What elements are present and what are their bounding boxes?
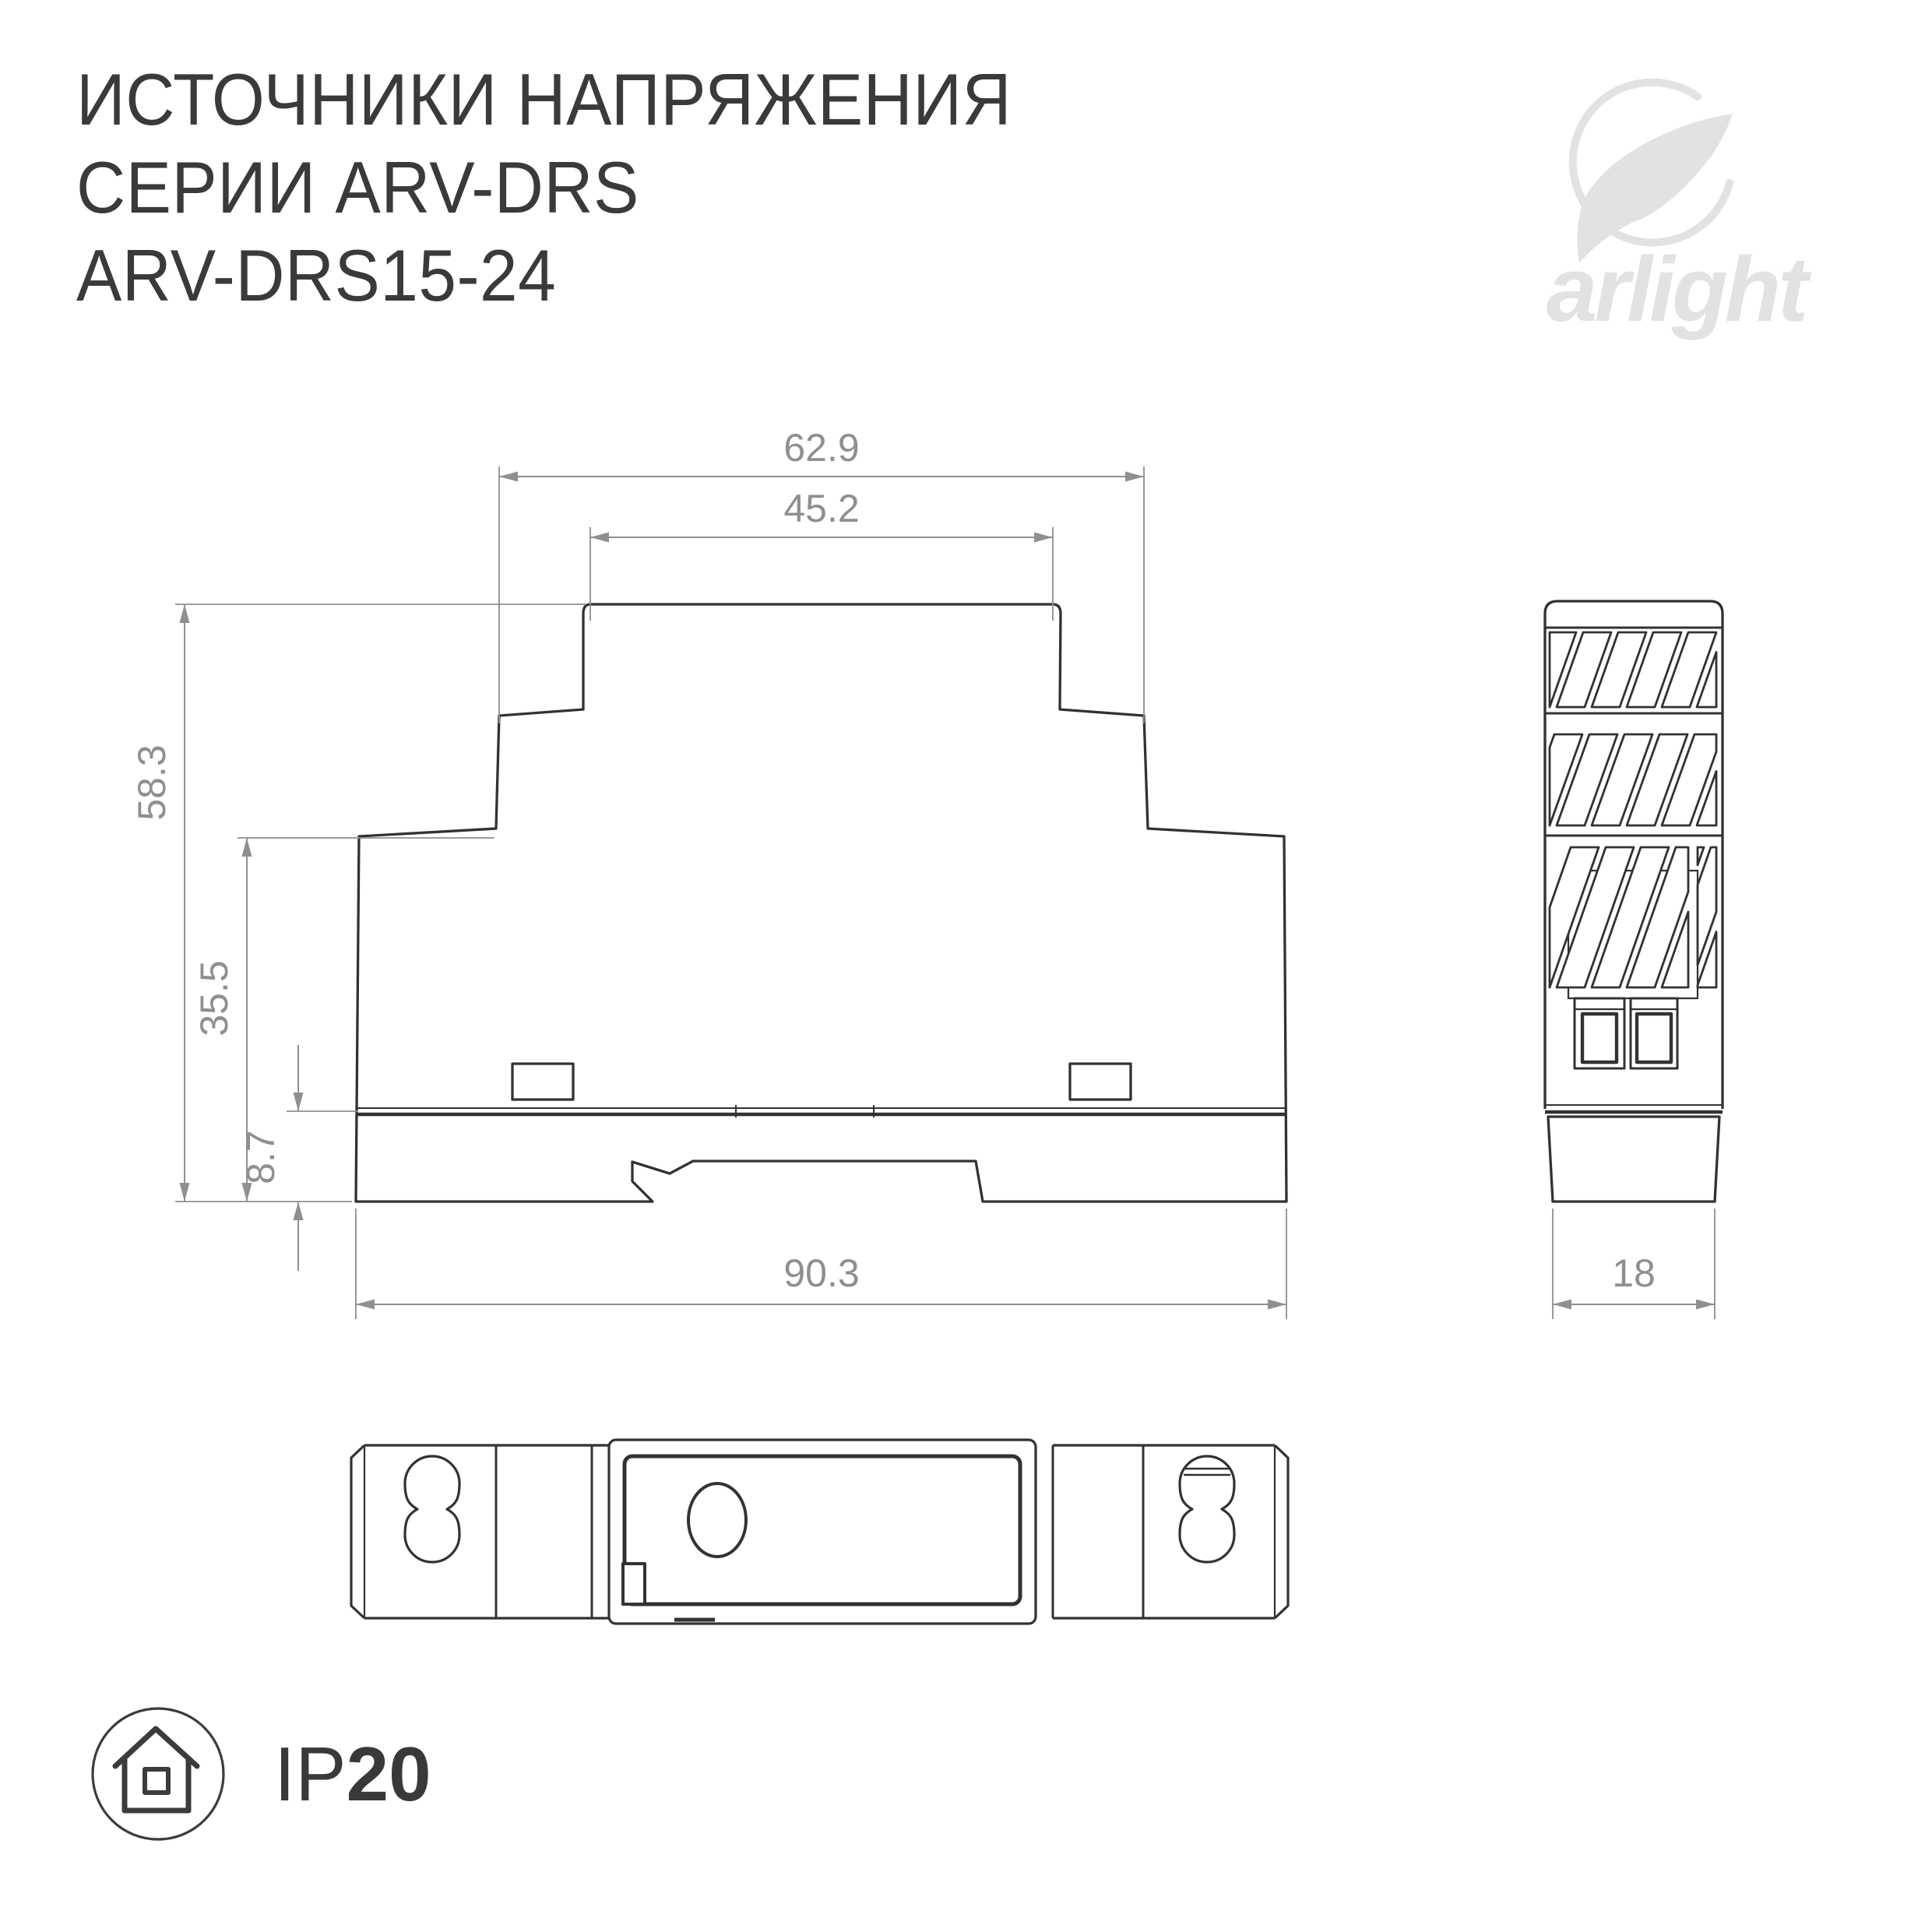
bottom-hole <box>688 1483 746 1557</box>
vent-grille <box>1550 632 1716 987</box>
logo-wordmark: arlight <box>1547 238 1812 341</box>
dimension-arrow <box>590 533 609 543</box>
dim-top-width: 62.9 <box>783 426 859 470</box>
dim-mid-height: 35.5 <box>192 960 236 1036</box>
ip-value: 20 <box>347 1731 431 1817</box>
front-mount-slot-left <box>512 1064 573 1100</box>
dimension-arrow <box>242 1183 252 1202</box>
bottom-latch <box>623 1564 645 1604</box>
ip-rating-text: IP20 <box>274 1731 431 1817</box>
front-mount-slot-right <box>1070 1064 1131 1100</box>
dimension-lines <box>175 466 1715 1319</box>
dimension-arrow <box>499 472 518 482</box>
house-in-circle-icon <box>93 1709 223 1839</box>
dim-total-width: 90.3 <box>783 1251 859 1295</box>
dimension-arrow <box>294 1202 304 1220</box>
keyhole-slot-right <box>1180 1456 1234 1562</box>
bottom-right-tab <box>1053 1445 1288 1618</box>
ip-prefix: IP <box>274 1731 347 1817</box>
side-view <box>1545 601 1723 1202</box>
dimension-arrow <box>180 1183 190 1202</box>
terminal-block-right <box>1631 998 1677 1068</box>
dimension-arrow <box>242 838 252 857</box>
dimension-arrow <box>1696 1300 1715 1310</box>
keyhole-slot-left <box>405 1456 459 1562</box>
dimension-arrow <box>1553 1300 1571 1310</box>
arlight-logo: arlight <box>1547 83 1812 341</box>
arlight-swoosh-icon <box>1573 83 1733 263</box>
dim-cap-width: 45.2 <box>783 487 859 530</box>
page: ИСТОЧНИКИ НАПРЯЖЕНИЯ СЕРИИ ARV-DRS ARV-D… <box>0 0 1932 1932</box>
front-view <box>356 604 1286 1202</box>
front-outline <box>356 604 1286 1202</box>
technical-drawing: arlight <box>0 0 1932 1932</box>
dim-base-height: 8.7 <box>239 1130 283 1184</box>
dimension-arrow <box>1034 533 1053 543</box>
dimension-arrow <box>180 604 190 623</box>
vent-slat <box>1698 847 1704 865</box>
bottom-left-tab <box>351 1445 609 1618</box>
dim-side-width: 18 <box>1612 1251 1656 1295</box>
side-base <box>1548 1117 1719 1202</box>
bottom-module <box>609 1440 1036 1624</box>
dimension-arrow <box>1125 472 1144 482</box>
dimension-arrow <box>294 1093 304 1111</box>
dimension-arrow <box>1268 1300 1286 1310</box>
terminal-block-left <box>1575 998 1624 1068</box>
dimension-arrow <box>356 1300 375 1310</box>
dim-total-height: 58.3 <box>130 744 174 820</box>
ip-badge: IP20 <box>93 1709 431 1839</box>
bottom-view <box>351 1440 1288 1624</box>
